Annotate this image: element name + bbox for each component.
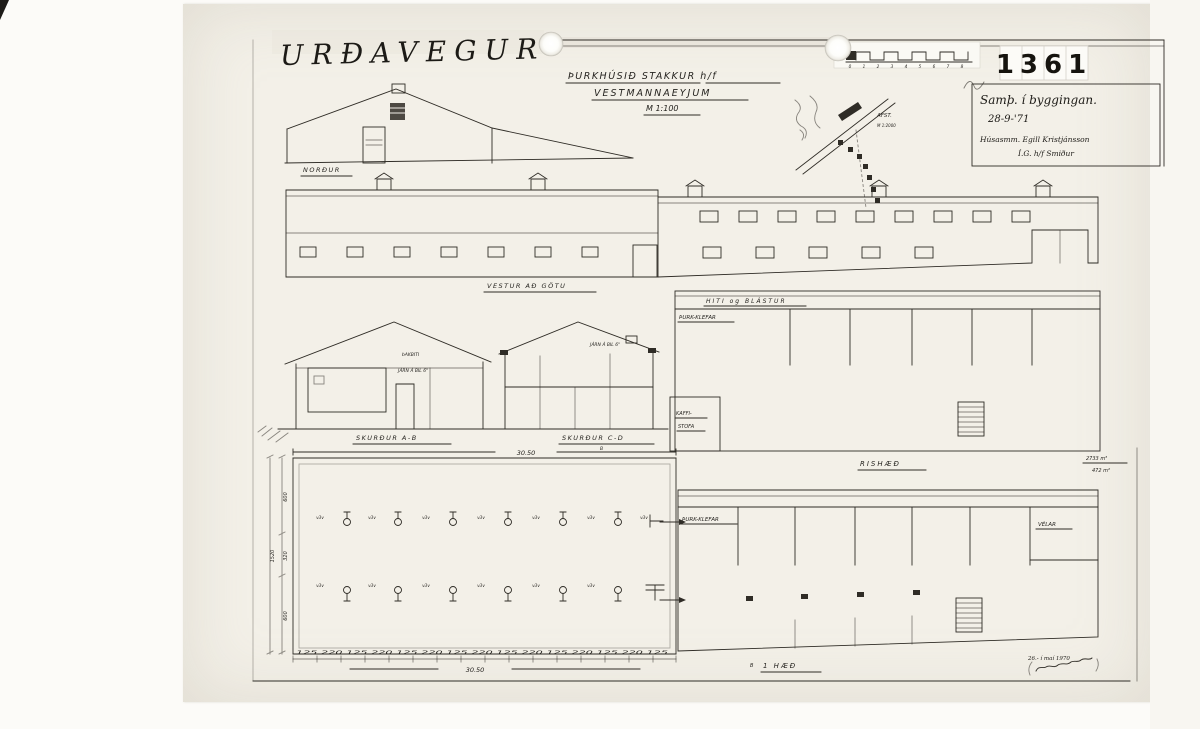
- scale-bar: 0 1 2 3 4 5 6 7 8: [834, 42, 980, 69]
- ground-plan-right: ÞURK-KLEFAR VÉLAR B 1 HÆÐ 26.- í maí 197…: [678, 490, 1098, 675]
- scale-tick: 0: [849, 64, 852, 69]
- scale-tick: 5: [919, 64, 922, 69]
- ground-plan-left: v3v v3v v3v v3v v3v v3v v3v v3v v3v v3v …: [267, 446, 686, 674]
- bottom-width-dim: 30.50: [466, 666, 485, 674]
- west-elevation-label: VESTUR AÐ GÖTU: [487, 281, 566, 290]
- scale-tick: 8: [961, 64, 964, 69]
- top-width-dim: 30.50: [517, 449, 536, 457]
- column-mark: v3v: [532, 583, 540, 588]
- bottom-chain-dims: 125 220 125 220 125 220 125 220 125 220 …: [296, 650, 669, 655]
- scan-corner-mark: [0, 0, 9, 20]
- stamp-date: 28-9-'71: [987, 114, 1029, 125]
- column-mark: v3v: [477, 583, 485, 588]
- scale-tick: 7: [947, 64, 950, 69]
- north-elevation: NORÐUR: [285, 84, 633, 176]
- ground-plan-label: 1 HÆÐ: [763, 662, 797, 670]
- section-marker: B: [600, 446, 603, 452]
- scale-tick: 6: [933, 64, 936, 69]
- left-dim: 600: [283, 492, 289, 502]
- machine-room-label: VÉLAR: [1038, 520, 1056, 528]
- volume-note: 2733 m³: [1086, 456, 1107, 462]
- date-note: 26.- í maí 1970: [1027, 655, 1070, 662]
- drying-rooms-label: ÞURK-KLEFAR: [679, 315, 716, 321]
- column-mark: v3v: [422, 515, 430, 520]
- north-elevation-label: NORÐUR: [303, 166, 341, 174]
- title-block: ÞURKHÚSIÐ STAKKUR h/f VESTMANNAEYJUM M 1…: [566, 70, 780, 115]
- coffee-room-label: STOFA: [678, 424, 695, 430]
- project-title: ÞURKHÚSIÐ STAKKUR h/f: [568, 70, 717, 82]
- heat-band-label: HITI og BLÁSTUR: [706, 298, 787, 305]
- column-mark: v3v: [316, 583, 324, 588]
- column-mark: v3v: [316, 515, 324, 520]
- section-cd: JÁRN Á BIL 6" SKURÐUR C-D: [493, 322, 668, 444]
- stamp-line1: Samþ. í byggingan.: [980, 93, 1097, 107]
- attic-plan-label: RISHÆÐ: [860, 460, 901, 468]
- section-cd-label: SKURÐUR C-D: [562, 434, 624, 442]
- street-name: URÐAVEGUR: [280, 32, 546, 72]
- column-mark: v3v: [640, 515, 648, 520]
- section-ab: ÞAKBITI JÁRN Á BIL 6" SKURÐUR A-B: [258, 322, 497, 444]
- punch-hole: [825, 35, 851, 61]
- coffee-room-label: KAFFI-: [676, 411, 692, 417]
- archive-number: 1361: [996, 50, 1092, 80]
- attic-plan: HITI og BLÁSTUR ÞURK-KLEFAR KAFFI- STOFA…: [670, 291, 1127, 474]
- left-total-dim: 1520: [270, 550, 276, 563]
- scanned-drawing-sheet: URÐAVEGUR ÞURKHÚSIÐ STAKKUR h/f VESTMANN…: [0, 0, 1200, 729]
- column-row: [344, 512, 664, 527]
- column-mark: v3v: [587, 515, 595, 520]
- scale-tick: 4: [905, 64, 908, 69]
- iron-spacing-note: JÁRN Á BIL 6": [397, 367, 428, 374]
- site-map-scale: M 1:2000: [877, 123, 896, 128]
- column-mark: v3v: [477, 515, 485, 520]
- section-marker: B: [750, 663, 754, 669]
- drying-rooms-label: ÞURK-KLEFAR: [682, 517, 719, 523]
- left-dim: 320: [283, 551, 289, 561]
- scale-tick: 2: [877, 64, 880, 69]
- column-mark: v3v: [422, 583, 430, 588]
- column-row: [344, 585, 665, 601]
- column-mark: v3v: [587, 583, 595, 588]
- column-mark: v3v: [368, 515, 376, 520]
- location: VESTMANNAEYJUM: [594, 88, 712, 99]
- west-elevation: VESTUR AÐ GÖTU: [286, 173, 1098, 292]
- left-dim: 600: [283, 611, 289, 621]
- iron-spacing-note: JÁRN Á BIL 6": [589, 341, 620, 348]
- column-mark: v3v: [532, 515, 540, 520]
- column-mark: v3v: [368, 583, 376, 588]
- stamp-line4: Í.G. h/f Smiður: [1017, 149, 1074, 158]
- area-note: 472 m²: [1092, 468, 1110, 474]
- drawing-linework: URÐAVEGUR ÞURKHÚSIÐ STAKKUR h/f VESTMANN…: [0, 0, 1200, 729]
- scale-tick: 3: [891, 64, 894, 69]
- punch-hole: [539, 32, 563, 56]
- roof-beam-note: ÞAKBITI: [402, 352, 420, 358]
- scale-tick: 1: [863, 64, 866, 69]
- stamp-line3: Húsasmm. Egill Kristjánsson: [979, 135, 1090, 144]
- archive-number-card: 1361: [996, 46, 1092, 80]
- site-map: AFST. M 1:2000: [795, 96, 896, 208]
- drawing-scale: M 1:100: [646, 104, 679, 113]
- approval-stamp: Samþ. í byggingan. 28-9-'71 Húsasmm. Egi…: [964, 81, 1160, 166]
- section-ab-label: SKURÐUR A-B: [356, 434, 418, 442]
- site-map-title: AFST.: [876, 113, 892, 119]
